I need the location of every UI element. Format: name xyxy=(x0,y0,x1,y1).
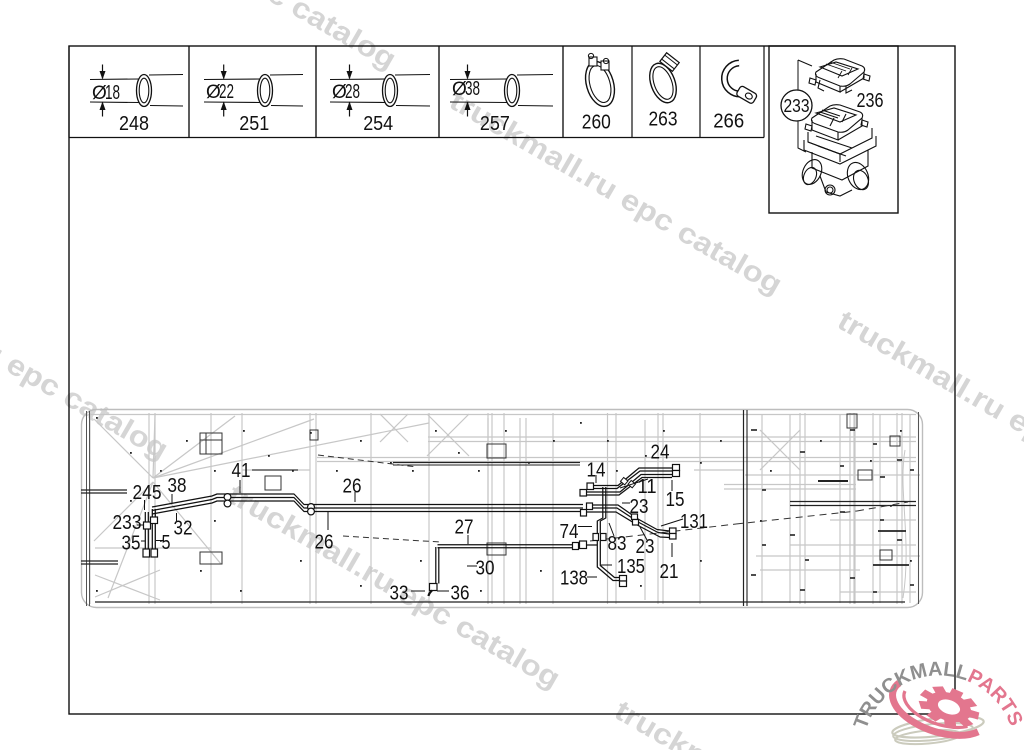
svg-text:257: 257 xyxy=(480,112,510,135)
svg-text:24: 24 xyxy=(651,441,670,464)
svg-text:26: 26 xyxy=(315,531,334,554)
svg-text:38: 38 xyxy=(168,474,187,497)
svg-text:18: 18 xyxy=(105,82,120,104)
svg-text:74: 74 xyxy=(560,520,579,543)
svg-text:248: 248 xyxy=(119,112,149,135)
svg-text:254: 254 xyxy=(363,112,393,135)
svg-text:5: 5 xyxy=(162,531,171,554)
svg-text:21: 21 xyxy=(660,560,679,583)
svg-text:131: 131 xyxy=(680,510,708,533)
svg-text:233: 233 xyxy=(784,96,810,116)
svg-text:30: 30 xyxy=(476,557,495,580)
svg-text:23: 23 xyxy=(630,495,649,518)
svg-text:38: 38 xyxy=(465,78,480,100)
svg-text:32: 32 xyxy=(174,517,193,540)
svg-text:138: 138 xyxy=(560,567,588,590)
svg-text:15: 15 xyxy=(666,488,685,511)
svg-text:236: 236 xyxy=(857,89,884,112)
svg-text:266: 266 xyxy=(713,110,744,133)
svg-text:14: 14 xyxy=(587,459,606,482)
svg-text:83: 83 xyxy=(608,532,627,555)
svg-text:41: 41 xyxy=(232,459,251,482)
svg-text:35: 35 xyxy=(122,532,141,555)
svg-text:27: 27 xyxy=(455,516,474,539)
svg-text:251: 251 xyxy=(239,112,269,135)
svg-text:36: 36 xyxy=(451,582,470,605)
svg-text:135: 135 xyxy=(617,555,645,578)
svg-text:260: 260 xyxy=(582,111,611,134)
svg-text:22: 22 xyxy=(219,81,234,103)
svg-text:28: 28 xyxy=(345,81,360,103)
svg-text:263: 263 xyxy=(649,108,678,131)
svg-text:245: 245 xyxy=(133,481,162,504)
svg-text:26: 26 xyxy=(343,475,362,498)
svg-text:33: 33 xyxy=(390,582,409,605)
